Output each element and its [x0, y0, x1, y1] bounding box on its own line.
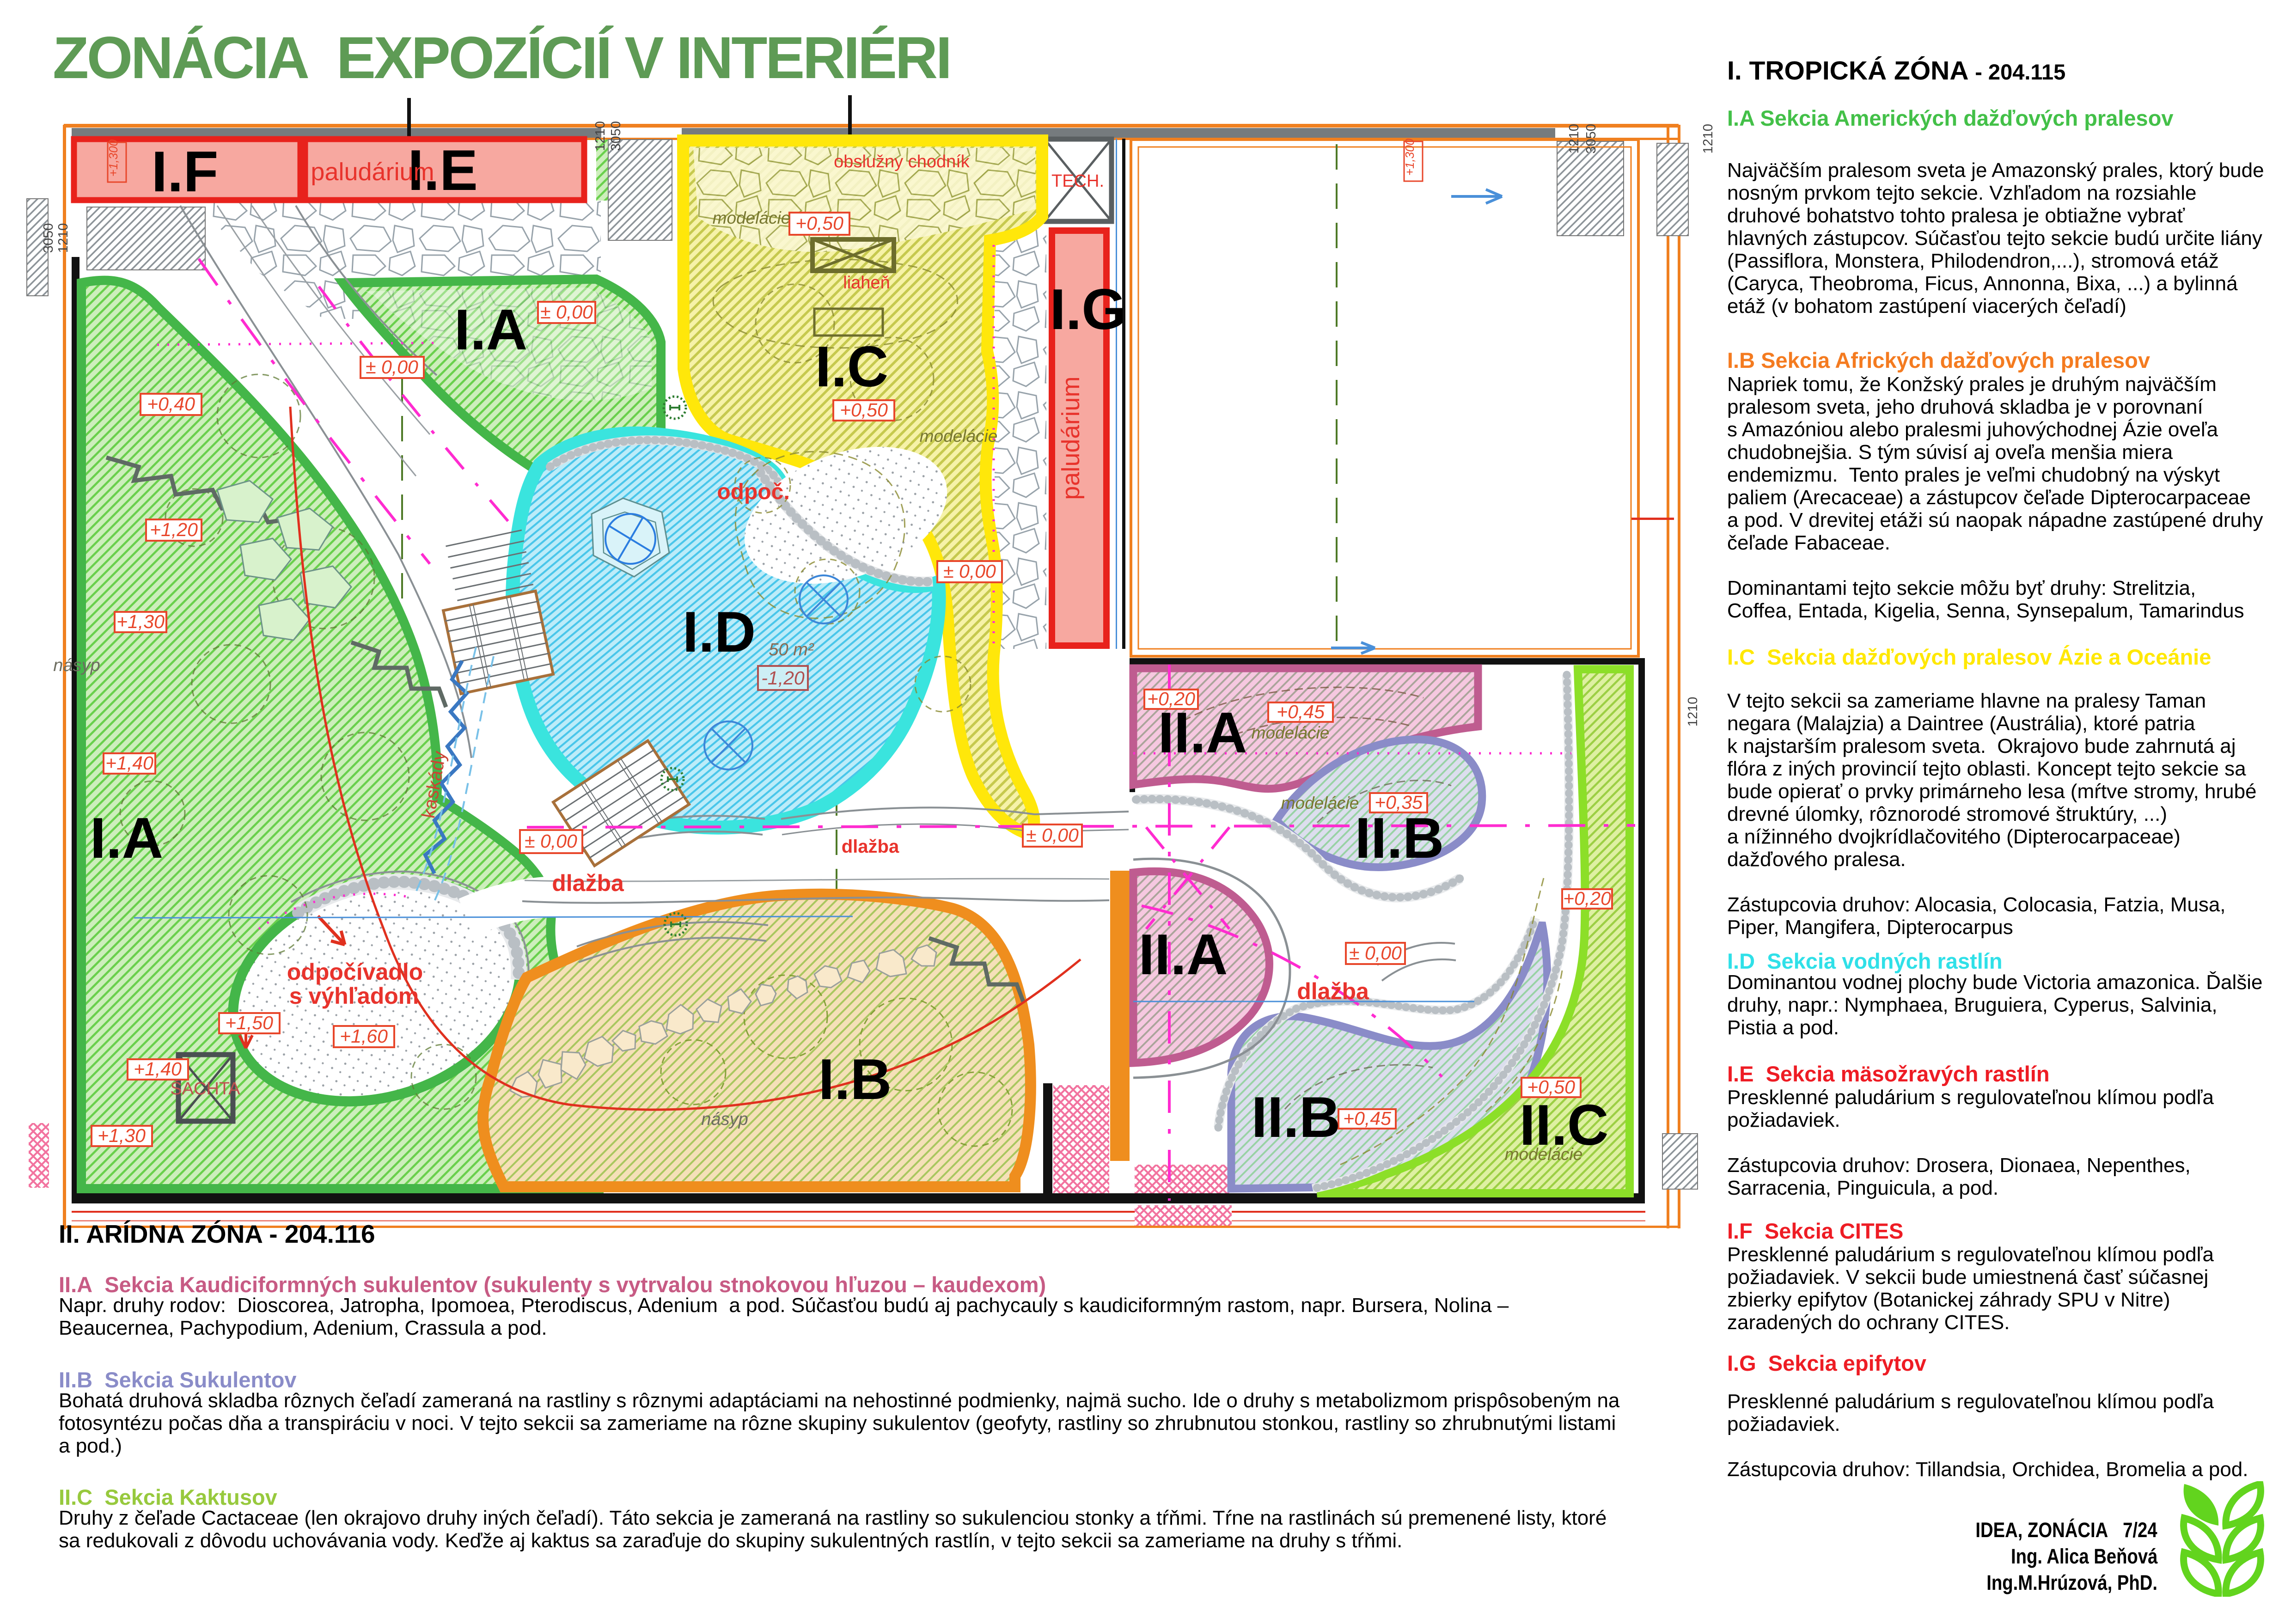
- svg-text:1210: 1210: [1567, 124, 1582, 154]
- svg-text:1210: 1210: [56, 223, 71, 253]
- svg-text:modelácie: modelácie: [713, 208, 791, 227]
- svg-text:obslužny chodník: obslužny chodník: [834, 152, 970, 171]
- svg-text:+1,300: +1,300: [106, 139, 120, 177]
- svg-text:modelácie: modelácie: [920, 427, 998, 446]
- svg-text:± 0,00: ± 0,00: [540, 301, 593, 323]
- svg-text:I.C: I.C: [815, 335, 888, 399]
- svg-text:II.A: II.A: [1158, 701, 1247, 765]
- svg-text:II.B: II.B: [1252, 1086, 1341, 1149]
- svg-text:I.F: I.F: [152, 140, 219, 204]
- svg-text:3050: 3050: [609, 121, 623, 151]
- svg-text:+1,50: +1,50: [225, 1012, 273, 1033]
- svg-text:paludárium: paludárium: [311, 158, 434, 186]
- svg-text:+0,40: +0,40: [147, 393, 195, 415]
- svg-text:+1,60: +1,60: [340, 1026, 388, 1047]
- svg-text:± 0,00: ± 0,00: [943, 561, 996, 582]
- svg-text:1210: 1210: [593, 121, 608, 151]
- svg-text:II.A: II.A: [1139, 923, 1228, 987]
- svg-text:odpočívadlo: odpočívadlo: [287, 959, 423, 985]
- svg-text:50 m²: 50 m²: [769, 640, 814, 659]
- svg-text:± 0,00: ± 0,00: [525, 830, 577, 852]
- svg-text:+1,30: +1,30: [116, 611, 165, 632]
- svg-text:1210: 1210: [1701, 124, 1716, 154]
- svg-text:II.B: II.B: [1355, 806, 1444, 870]
- svg-text:s výhľadom: s výhľadom: [289, 983, 419, 1009]
- svg-text:+1,40: +1,40: [105, 752, 153, 774]
- svg-text:dlažba: dlažba: [1297, 978, 1369, 1004]
- svg-text:+0,45: +0,45: [1277, 701, 1325, 722]
- svg-text:3050: 3050: [41, 223, 56, 253]
- svg-text:odpoč.: odpoč.: [717, 480, 789, 504]
- svg-text:1210: 1210: [1686, 697, 1700, 727]
- svg-text:± 0,00: ± 0,00: [366, 356, 418, 378]
- svg-text:-1,20: -1,20: [761, 667, 805, 689]
- svg-text:dlažba: dlažba: [552, 870, 624, 896]
- svg-text:ŠACHTA: ŠACHTA: [170, 1078, 240, 1099]
- svg-text:násyp: násyp: [701, 1110, 748, 1129]
- svg-text:modelácie: modelácie: [1505, 1145, 1583, 1164]
- svg-text:+0,20: +0,20: [1563, 888, 1611, 909]
- svg-text:I.D: I.D: [683, 600, 756, 664]
- svg-text:I.B: I.B: [819, 1048, 892, 1111]
- svg-text:+0,50: +0,50: [795, 213, 843, 234]
- svg-text:TECH.: TECH.: [1051, 171, 1104, 191]
- svg-text:+1,40: +1,40: [134, 1058, 182, 1080]
- svg-text:+1,20: +1,20: [150, 519, 198, 540]
- svg-text:+1,300: +1,300: [1403, 138, 1417, 176]
- svg-text:+1,30: +1,30: [98, 1125, 146, 1146]
- svg-text:dlažba: dlažba: [842, 836, 899, 857]
- svg-text:3050: 3050: [1584, 124, 1599, 154]
- svg-text:+0,50: +0,50: [840, 399, 888, 421]
- svg-text:násyp: násyp: [53, 656, 100, 675]
- svg-text:I.A: I.A: [90, 806, 163, 870]
- svg-text:± 0,00: ± 0,00: [1026, 824, 1079, 846]
- svg-text:modelácie: modelácie: [1252, 723, 1330, 742]
- svg-text:± 0,00: ± 0,00: [1349, 942, 1402, 964]
- svg-text:modelácie: modelácie: [1281, 794, 1359, 812]
- svg-text:paludárium: paludárium: [1057, 376, 1085, 500]
- svg-text:+0,45: +0,45: [1343, 1108, 1391, 1129]
- svg-text:I.G: I.G: [1050, 278, 1126, 342]
- svg-text:I.A: I.A: [454, 298, 527, 362]
- svg-text:liaheň: liaheň: [843, 273, 890, 293]
